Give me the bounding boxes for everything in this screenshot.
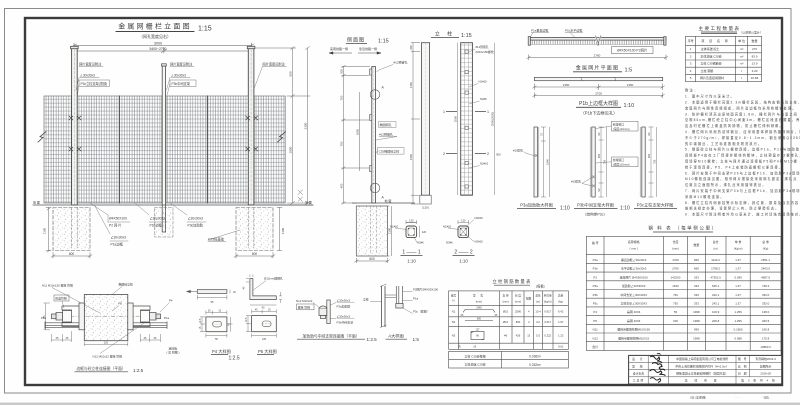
svg-text:N11 M10x150 螺栓 管帽: N11 M10x150 螺栓 管帽	[42, 283, 73, 288]
svg-text:倒角锐口: 倒角锐口	[613, 158, 624, 162]
svg-text:P3a加劲肋: P3a加劲肋	[337, 304, 351, 309]
svg-text:2700: 2700	[595, 91, 602, 95]
svg-text:P3b中间支架大样图: P3b中间支架大样图	[577, 201, 614, 208]
svg-text:N3#6: N3#6	[417, 241, 424, 245]
svg-text:单位重: 单位重	[544, 294, 552, 298]
svg-text:700: 700	[340, 95, 344, 100]
svg-text:N1#10: N1#10	[443, 225, 452, 229]
svg-text:0.252m³: 0.252m³	[529, 363, 541, 367]
svg-text:10.4: 10.4	[535, 310, 541, 314]
svg-text:防盗管帽: 防盗管帽	[55, 296, 67, 301]
svg-text:546.1: 546.1	[712, 284, 720, 288]
svg-text:水平边框∠30x30x3: 水平边框∠30x30x3	[621, 266, 647, 271]
svg-text:N1: N1	[452, 310, 456, 314]
svg-text:730: 730	[673, 302, 678, 306]
svg-text:(Kg/m): (Kg/m)	[734, 247, 743, 251]
svg-text:t: t	[741, 69, 742, 73]
svg-text:2019.08: 2019.08	[760, 372, 771, 376]
svg-text:1. 图中尺寸均以毫米计。: 1. 图中尺寸均以毫米计。	[685, 94, 735, 99]
svg-text:长度: 长度	[673, 239, 679, 244]
svg-text:1998: 1998	[693, 310, 700, 314]
svg-text:Ø10: Ø10	[503, 310, 509, 314]
svg-text:合 计: 合 计	[458, 345, 482, 349]
svg-text:105: 105	[673, 319, 678, 323]
svg-text:立 柱: 立 柱	[435, 31, 455, 38]
svg-text:· 归档 ·: · 归档 ·	[762, 396, 770, 400]
svg-text:侧面图: 侧面图	[347, 37, 365, 44]
svg-text:10860.0: 10860.0	[760, 345, 771, 349]
svg-text:0.036m³: 0.036m³	[529, 355, 541, 359]
svg-text:P3a加劲肋大样图: P3a加劲肋大样图	[520, 201, 553, 208]
svg-text:附注：: 附注：	[685, 88, 699, 93]
svg-text:P1a: P1a	[413, 297, 419, 301]
svg-text:型 式: 型 式	[473, 294, 485, 298]
svg-text:1998: 1998	[693, 336, 700, 340]
svg-text:工总师: 工总师	[633, 378, 645, 383]
svg-text:127: 127	[476, 329, 481, 332]
svg-text:名称规格: 名称规格	[628, 239, 640, 244]
svg-text:∠30x30x3: ∠30x30x3	[337, 314, 351, 318]
svg-text:730: 730	[653, 159, 657, 164]
svg-text:P3c加劲肋: P3c加劲肋	[188, 223, 204, 228]
svg-text:（P1b下边框见孔）: （P1b下边框见孔）	[581, 110, 618, 117]
svg-text:网片宽度见附注: 网片宽度见附注	[170, 62, 193, 67]
svg-text:∠30x30x3: ∠30x30x3	[150, 217, 166, 221]
svg-text:1350: 1350	[563, 83, 570, 87]
svg-text:（每根）: （每根）	[534, 284, 547, 289]
svg-text:(kg): (kg)	[558, 300, 563, 304]
svg-text:13: 13	[527, 334, 530, 338]
svg-text:2: 2	[443, 152, 445, 156]
svg-text:2500(2620): 2500(2620)	[490, 112, 494, 126]
svg-text:1640: 1640	[672, 284, 679, 288]
svg-text:1350: 1350	[627, 83, 634, 87]
svg-text:序号: 序号	[688, 38, 694, 43]
svg-text:0.617: 0.617	[544, 310, 551, 314]
svg-text:∠30x30x3: ∠30x30x3	[188, 217, 204, 221]
svg-text:N2#10: N2#10	[475, 240, 484, 244]
svg-text:倒角锐口: 倒角锐口	[613, 122, 624, 126]
svg-text:6.42: 6.42	[558, 310, 564, 314]
svg-text:∠30x30x3: ∠30x30x3	[171, 74, 186, 78]
svg-text:(120): (120)	[422, 206, 429, 210]
svg-text:螺栓带螺帽垫圈M10X22: 螺栓带螺帽垫圈M10X22	[618, 335, 649, 340]
svg-text:P3c立柱支架(顶部): P3c立柱支架(顶部)	[81, 81, 108, 86]
svg-text:700: 700	[340, 141, 344, 146]
svg-text:55: 55	[674, 310, 678, 314]
svg-text:N: N	[453, 299, 455, 303]
svg-text:单 重: 单 重	[735, 239, 742, 244]
svg-text:120: 120	[104, 341, 109, 344]
svg-text:426: 426	[516, 334, 521, 338]
svg-text:1350: 1350	[409, 153, 413, 160]
svg-text:主要工程数量表: 主要工程数量表	[699, 25, 741, 32]
svg-text:3. 防护栅栏须高出原地面高度1.8m，栅栏网片与地面之间: 3. 防护栅栏须高出原地面高度1.8m，栅栏网片与地面之间	[685, 111, 798, 116]
svg-text:P1b边框: P1b边框	[150, 223, 163, 228]
svg-text:P3c立柱支架大样图: P3c立柱支架大样图	[637, 201, 674, 208]
svg-text:1.97: 1.97	[558, 320, 564, 324]
svg-text:105: 105	[262, 338, 267, 341]
svg-text:P2网片Ø4X50X100: P2网片Ø4X50X100	[413, 287, 438, 292]
svg-text:1:10: 1:10	[560, 206, 570, 212]
svg-text:Ø4X50X100 P2网片: Ø4X50X100 P2网片	[617, 48, 648, 53]
svg-text:数量: 数量	[751, 38, 757, 43]
svg-text:270: 270	[752, 47, 757, 51]
svg-text:1: 1	[487, 110, 489, 114]
svg-text:730: 730	[673, 293, 678, 297]
svg-text:N12 M10x22: N12 M10x22	[296, 299, 313, 303]
svg-text:Ø12mm圆钢孔: Ø12mm圆钢孔	[264, 276, 283, 281]
svg-text:垂直边框∠30x30x3: 垂直边框∠30x30x3	[621, 257, 647, 262]
svg-text:2. 本图适用于栅栏高度2.3m栅栏区段，结构由钢筋砼立柱、: 2. 本图适用于栅栏高度2.3m栅栏区段，结构由钢筋砼立柱、	[685, 100, 800, 105]
svg-text:扁钢 40X4: 扁钢 40X4	[627, 318, 641, 323]
svg-text:项 目 名 称: 项 目 名 称	[701, 38, 730, 43]
svg-text:总重: 总重	[558, 294, 564, 298]
svg-text:金属网片 Ø4X50X100: 金属网片 Ø4X50X100	[620, 274, 649, 279]
svg-text:N11: N11	[593, 328, 598, 332]
svg-text:1:2.5: 1:2.5	[133, 368, 144, 373]
svg-text:0.099: 0.099	[734, 275, 742, 279]
svg-text:12.5: 12.5	[245, 317, 248, 322]
svg-text:N3#6: N3#6	[480, 97, 487, 101]
svg-text:总 重: 总 重	[762, 239, 769, 244]
svg-text:1150: 1150	[409, 82, 413, 88]
svg-text:333.0: 333.0	[762, 293, 770, 297]
svg-text:N3#6: N3#6	[446, 241, 453, 245]
svg-text:主体基础 C25砼: 主体基础 C25砼	[700, 53, 721, 58]
svg-text:如图所示: 如图所示	[760, 363, 772, 368]
svg-text:钢筋混凝土立柱金属网栅栏（加固方案）: 钢筋混凝土立柱金属网栅栏（加固方案）	[676, 371, 728, 376]
svg-text:1:15: 1:15	[378, 39, 389, 45]
svg-text:300: 300	[496, 153, 501, 157]
svg-text:P1b上边框大样图: P1b上边框大样图	[579, 100, 618, 107]
svg-text:主体基础 挖土: 主体基础 挖土	[701, 46, 720, 51]
svg-text:5400~2700: 5400~2700	[149, 47, 166, 51]
svg-text:来南线路一侧: 来南线路一侧	[330, 46, 348, 51]
svg-text:图 号: 图 号	[738, 356, 748, 361]
svg-text:1:5: 1:5	[625, 68, 633, 74]
svg-text:m³: m³	[740, 47, 744, 51]
svg-text:263.5: 263.5	[762, 319, 770, 323]
svg-text:m³: m³	[740, 54, 744, 58]
svg-text:扁钢 40X4: 扁钢 40X4	[627, 309, 641, 314]
svg-text:1.22: 1.22	[558, 334, 564, 338]
svg-text:网片及连接用钢材: 网片及连接用钢材	[700, 75, 724, 80]
svg-text:1.256: 1.256	[734, 310, 742, 314]
svg-text:N12 M10x22 螺栓 管帽: N12 M10x22 螺栓 管帽	[93, 353, 123, 358]
svg-text:P3c: P3c	[593, 302, 599, 306]
svg-text:2300: 2300	[303, 122, 307, 129]
svg-text:243.1: 243.1	[712, 293, 720, 297]
svg-text:( 见 附图 ): ( 见 附图 )	[167, 350, 180, 355]
svg-text:1.37: 1.37	[735, 302, 741, 306]
svg-text:6. 网片安装于中间支架P3b与上边框P1b、加劲肋P3a现: 6. 网片安装于中间支架P3b与上边框P1b、加劲肋P3a现场	[685, 170, 800, 175]
svg-text:1:2.5: 1:2.5	[367, 337, 378, 342]
svg-text:5. 钢筋砼立柱与网片以螺栓连接。边框P1a、P1b与加劲肋: 5. 钢筋砼立柱与网片以螺栓连接。边框P1a、P1b与加劲肋P3a、	[685, 147, 800, 152]
svg-text:连接板P4应在工厂焊接并整体热镀锌，立柱预留Ø12螺栓孔，: 连接板P4应在工厂焊接并整体热镀锌，立柱预留Ø12螺栓孔，	[685, 153, 800, 158]
svg-text:(mm): (mm)	[672, 247, 679, 251]
svg-text:1.256: 1.256	[734, 319, 742, 323]
svg-text:333: 333	[694, 284, 699, 288]
svg-text:142200: 142200	[671, 275, 681, 279]
svg-text:#12预留孔: #12预留孔	[394, 60, 408, 65]
svg-text:专济辆统2019-3: 专济辆统2019-3	[755, 356, 776, 361]
svg-text:编号: 编号	[451, 294, 457, 298]
svg-text:P5 大样图: P5 大样图	[258, 348, 277, 355]
svg-text:(mm): (mm)	[476, 300, 482, 304]
svg-text:3000: 3000	[154, 42, 162, 46]
svg-text:333.0: 333.0	[762, 302, 770, 306]
svg-text:1700: 1700	[672, 258, 679, 262]
svg-text:（结构参P3c）: （结构参P3c）	[583, 212, 607, 217]
svg-text:2700: 2700	[672, 267, 679, 271]
svg-text:| 档 | 案|章|图|: | 档 | 案|章|图|	[690, 396, 706, 400]
svg-text:设 计: 设 计	[632, 356, 645, 361]
svg-text:8. 栅栏立柱内侧悬挂警示标志牌，其位置、数量及标志内容: 8. 栅栏立柱内侧悬挂警示标志牌，其位置、数量及标志内容	[685, 200, 799, 205]
svg-text:175.8: 175.8	[762, 336, 770, 340]
svg-text:2596: 2596	[515, 310, 521, 314]
svg-text:椭圆砼立柱: 椭圆砼立柱	[119, 282, 134, 287]
svg-text:P3b中间支架: P3b中间支架	[337, 320, 354, 325]
svg-text:P3c（底部）: P3c（底部）	[413, 309, 430, 314]
svg-text:(kg/m): (kg/m)	[544, 300, 552, 304]
svg-text:165.8: 165.8	[762, 328, 770, 332]
svg-text:N1#10: N1#10	[390, 225, 399, 229]
svg-text:总长: 总长	[713, 239, 719, 244]
svg-text:666: 666	[694, 258, 699, 262]
svg-text:日 期: 日 期	[738, 371, 748, 376]
svg-text:立柱 钢筋: 立柱 钢筋	[701, 68, 714, 73]
svg-text:根数: 根数	[526, 297, 532, 301]
svg-text:N2: N2	[452, 320, 456, 324]
svg-text:钢 料 表 （每单侧公里）: 钢 料 表 （每单侧公里）	[648, 225, 717, 232]
svg-text:C25砼基础: C25砼基础	[208, 237, 225, 242]
svg-text:500: 500	[288, 71, 292, 76]
svg-text:N1#10: N1#10	[479, 80, 488, 84]
svg-text:地 面: 地 面	[33, 200, 40, 205]
svg-text:A大样图: A大样图	[388, 332, 403, 339]
svg-text:#10圆孔: #10圆孔	[571, 180, 581, 184]
svg-text:网片宽度见附注: 网片宽度见附注	[263, 62, 286, 67]
svg-text:300: 300	[340, 69, 344, 74]
svg-text:P4 大样图: P4 大样图	[212, 348, 231, 355]
svg-text:1100: 1100	[281, 227, 285, 234]
svg-text:C35椭圆砼立柱: C35椭圆砼立柱	[379, 149, 400, 154]
svg-text:1: 1	[443, 110, 445, 114]
svg-text:109.9: 109.9	[712, 310, 720, 314]
svg-text:中修上海局栅栏线路防护栏杆（H=2.3m）: 中修上海局栅栏线路防护栏杆（H=2.3m）	[675, 363, 729, 368]
svg-text:Ø4X50X100: Ø4X50X100	[109, 217, 127, 221]
svg-text:#12预留孔: #12预留孔	[476, 45, 489, 49]
svg-text:(mm): (mm)	[515, 300, 521, 304]
svg-text:P4: P4	[169, 299, 173, 303]
svg-text:的中碳钢丝，工艺标准按相关规范执行。: 的中碳钢丝，工艺标准按相关规范执行。	[685, 141, 762, 146]
svg-text:1132.2: 1132.2	[711, 258, 720, 262]
svg-text:13.9: 13.9	[752, 62, 758, 66]
svg-text:（以单侧公里计）: （以单侧公里计）	[740, 30, 763, 35]
svg-text:#10圆孔: #10圆孔	[513, 149, 523, 153]
svg-text:(深度≤10mm): (深度≤10mm)	[613, 127, 630, 131]
svg-text:800: 800	[477, 318, 482, 321]
svg-text:350: 350	[647, 153, 651, 158]
svg-text:5.5: 5.5	[536, 334, 540, 338]
svg-text:748.2: 748.2	[762, 284, 770, 288]
svg-text:总长: 总长	[535, 294, 541, 298]
svg-text:m³: m³	[740, 62, 744, 66]
svg-text:2460: 2460	[476, 307, 482, 310]
svg-text:333: 333	[694, 302, 699, 306]
svg-text:网片宽度见附注: 网片宽度见附注	[79, 62, 102, 67]
svg-text:(深度≤10mm): (深度≤10mm)	[613, 163, 630, 167]
svg-text:立柱钢筋数量表: 立柱钢筋数量表	[492, 278, 531, 285]
svg-text:2500: 2500	[454, 115, 458, 122]
svg-text:· · · ·: · · · ·	[735, 397, 741, 400]
svg-text:P4: P4	[593, 310, 597, 314]
svg-text:0.617: 0.617	[544, 320, 551, 324]
svg-text:350: 350	[597, 153, 601, 158]
svg-text:P3a: P3a	[593, 284, 599, 288]
svg-text:333: 333	[694, 293, 699, 297]
svg-text:1.37: 1.37	[735, 258, 741, 262]
svg-text:总 体 布 置: 总 体 布 置	[685, 378, 720, 383]
svg-text:P3b: P3b	[593, 293, 599, 297]
svg-text:地 面: 地 面	[385, 198, 392, 203]
svg-text:120: 120	[409, 219, 414, 223]
svg-text:立柱基础 C25砼: 立柱基础 C25砼	[464, 362, 485, 367]
svg-text:#6: #6	[504, 334, 507, 338]
svg-text:栓于现场连接。P5、P4上安装防盗螺帽以便连接。: 栓于现场连接。P5、P4上安装防盗螺帽以便连接。	[685, 164, 783, 169]
svg-text:1.37: 1.37	[735, 267, 741, 271]
svg-text:金属网片平面图: 金属网片平面图	[576, 65, 619, 72]
svg-text:（网孔宽度见右）: （网孔宽度见右）	[139, 33, 171, 39]
svg-text:1:10: 1:10	[620, 206, 630, 212]
svg-text:现场穿M10螺栓；立柱与网片通过连接板P5和P4穿M10螺: 现场穿M10螺栓；立柱与网片通过连接板P5和P4穿M10螺	[685, 159, 798, 164]
svg-text:立柱 C35砼每根: 立柱 C35砼每根	[464, 353, 485, 358]
svg-text:47352.6: 47352.6	[710, 275, 721, 279]
svg-text:9. 本图尺寸除注明者外均以毫米计，施工时请结合现场核对。: 9. 本图尺寸除注明者外均以毫米计，施工时请结合现场核对。	[685, 212, 800, 217]
svg-text:靠近线路一侧: 靠近线路一侧	[359, 46, 377, 51]
svg-text:(m): (m)	[536, 300, 540, 304]
svg-text:450: 450	[340, 183, 344, 188]
svg-text:设计负责: 设计负责	[633, 371, 645, 376]
svg-text:加劲肋与中间支架连接图（平面）: 加劲肋与中间支架连接图（平面）	[303, 333, 360, 338]
svg-text:编 号: 编 号	[592, 240, 599, 245]
svg-text:138.0: 138.0	[762, 310, 770, 314]
svg-text:3.20: 3.20	[752, 69, 758, 73]
svg-text:立柱 C35钢筋砼: 立柱 C35钢筋砼	[700, 61, 721, 66]
svg-text:复 核: 复 核	[632, 363, 645, 368]
svg-text:直 径: 直 径	[503, 294, 509, 298]
svg-text:(Kg): (Kg)	[763, 247, 768, 251]
svg-text:∠30x30x3: ∠30x30x3	[80, 74, 95, 78]
svg-text:中国铁路上海局集团有限公司工电检测所: 中国铁路上海局集团有限公司工电检测所	[676, 356, 728, 361]
svg-text:空隙85cm,栅栏砼立柱中心间距3m。栅栏区段连线顺直，养护: 空隙85cm,栅栏砼立柱中心间距3m。栅栏区段连线顺直，养护时	[685, 117, 800, 122]
svg-text:333: 333	[694, 275, 699, 279]
svg-text:P5: P5	[593, 319, 597, 323]
svg-text:12.5: 12.5	[199, 318, 202, 323]
svg-text:1:10: 1:10	[407, 259, 416, 264]
svg-text:1798.2: 1798.2	[711, 267, 720, 271]
svg-text:0.222: 0.222	[544, 334, 551, 338]
svg-text:M10螺栓连接见图。相邻网片搭接处采用绑扎固定，绑扎点: M10螺栓连接见图。相邻网片搭接处采用绑扎固定，绑扎点	[685, 176, 798, 181]
svg-text:1.37: 1.37	[735, 284, 741, 288]
svg-text:(M10x150螺栓): (M10x150螺栓)	[476, 50, 495, 54]
svg-text:1:2.5: 1:2.5	[229, 356, 240, 362]
svg-text:7. 网片安装于中间支架P3b与上边框P1b、加劲肋P3a现: 7. 网片安装于中间支架P3b与上边框P1b、加劲肋P3a现场	[685, 188, 800, 193]
svg-text:金属网栅栏立面图: 金属网栅栏立面图	[118, 22, 192, 31]
svg-text:合计: 合计	[592, 344, 598, 349]
svg-text:Ø10: Ø10	[503, 320, 509, 324]
svg-text:第 3 张 共 4 张: 第 3 张 共 4 张	[741, 378, 776, 383]
svg-text:1551.1: 1551.1	[761, 258, 770, 262]
svg-text:0.1660: 0.1660	[734, 328, 743, 332]
svg-text:3.2: 3.2	[536, 320, 540, 324]
svg-text:位置见立面图所示，绑扎丝采用镀锌铁丝。: 位置见立面图所示，绑扎丝采用镀锌铁丝。	[685, 182, 767, 187]
svg-text:数量: 数量	[694, 242, 700, 247]
svg-text:9.61: 9.61	[558, 345, 564, 349]
svg-text:243.1: 243.1	[712, 302, 720, 306]
svg-text:∠30x30x3: ∠30x30x3	[111, 236, 127, 240]
svg-text:(m): (m)	[713, 247, 717, 251]
svg-text:P1a: P1a	[593, 258, 599, 262]
svg-text:300: 300	[409, 45, 413, 50]
svg-text:按相关规定办理，设置禁止入内、防止攀爬标志。: 按相关规定办理，设置禁止入内、防止攀爬标志。	[685, 206, 779, 211]
svg-text:( mm ): ( mm )	[630, 247, 638, 251]
svg-text:立柱: 立柱	[363, 297, 369, 302]
svg-text:∠30x30x3: ∠30x30x3	[337, 298, 351, 302]
svg-text:10.86: 10.86	[751, 76, 759, 80]
svg-text:单 位: 单 位	[738, 38, 745, 43]
svg-text:P1a: P1a	[164, 316, 170, 320]
svg-text:1:15: 1:15	[198, 26, 212, 33]
svg-text:N12: N12	[593, 336, 599, 340]
svg-text:立柱支架∠30X30X3: 立柱支架∠30X30X3	[621, 301, 648, 306]
svg-text:800: 800	[516, 320, 521, 324]
svg-text:4. 栅栏网片采用热浸锌钢丝，应采用整体焊接热镀锌网片，镀锌: 4. 栅栏网片采用热浸锌钢丝，应采用整体焊接热镀锌网片，镀锌量	[685, 129, 800, 134]
svg-text:1:5: 1:5	[413, 337, 420, 342]
svg-text:比 例: 比 例	[738, 363, 748, 368]
svg-text:N3: N3	[452, 334, 456, 338]
svg-text:730: 730	[603, 159, 607, 164]
svg-text:0.088: 0.088	[734, 336, 742, 340]
svg-text:1:10: 1:10	[459, 259, 468, 264]
svg-text:1800: 1800	[356, 128, 360, 135]
svg-text:2463.5: 2463.5	[761, 267, 770, 271]
svg-text:金属网片与刚性连接组成，网片及边框均采用热镀锌处理。: 金属网片与刚性连接组成，网片及边框均采用热镀锌处理。	[685, 105, 797, 110]
svg-text:600: 600	[369, 257, 375, 261]
svg-text:120: 120	[422, 230, 427, 234]
svg-text:600: 600	[252, 252, 258, 256]
svg-text:边框与砼立柱连接图（平面）: 边框与砼立柱连接图（平面）	[76, 366, 125, 371]
svg-text:1540: 1540	[546, 159, 550, 165]
svg-text:(mm): (mm)	[502, 300, 508, 304]
svg-text:209.8: 209.8	[712, 319, 720, 323]
svg-text:1:15: 1:15	[461, 33, 472, 39]
svg-text:666: 666	[694, 267, 699, 271]
svg-text:P1a垂直边框: P1a垂直边框	[531, 28, 548, 33]
svg-text:螺栓 管帽: 螺栓 管帽	[298, 304, 310, 309]
svg-text:4687.9: 4687.9	[761, 275, 770, 279]
svg-text:2: 2	[487, 152, 489, 156]
svg-text:1:10: 1:10	[624, 103, 635, 109]
svg-text:加劲肋∠30X30X3: 加劲肋∠30X30X3	[622, 283, 646, 288]
svg-text:600: 600	[69, 252, 75, 256]
svg-text:1800: 1800	[288, 146, 292, 153]
svg-text:N2#10: N2#10	[475, 216, 484, 220]
svg-text:P1b: P1b	[593, 267, 599, 271]
svg-text:中间支架∠30X30X3: 中间支架∠30X30X3	[621, 292, 648, 297]
svg-text:P1a边框: P1a边框	[111, 242, 124, 247]
